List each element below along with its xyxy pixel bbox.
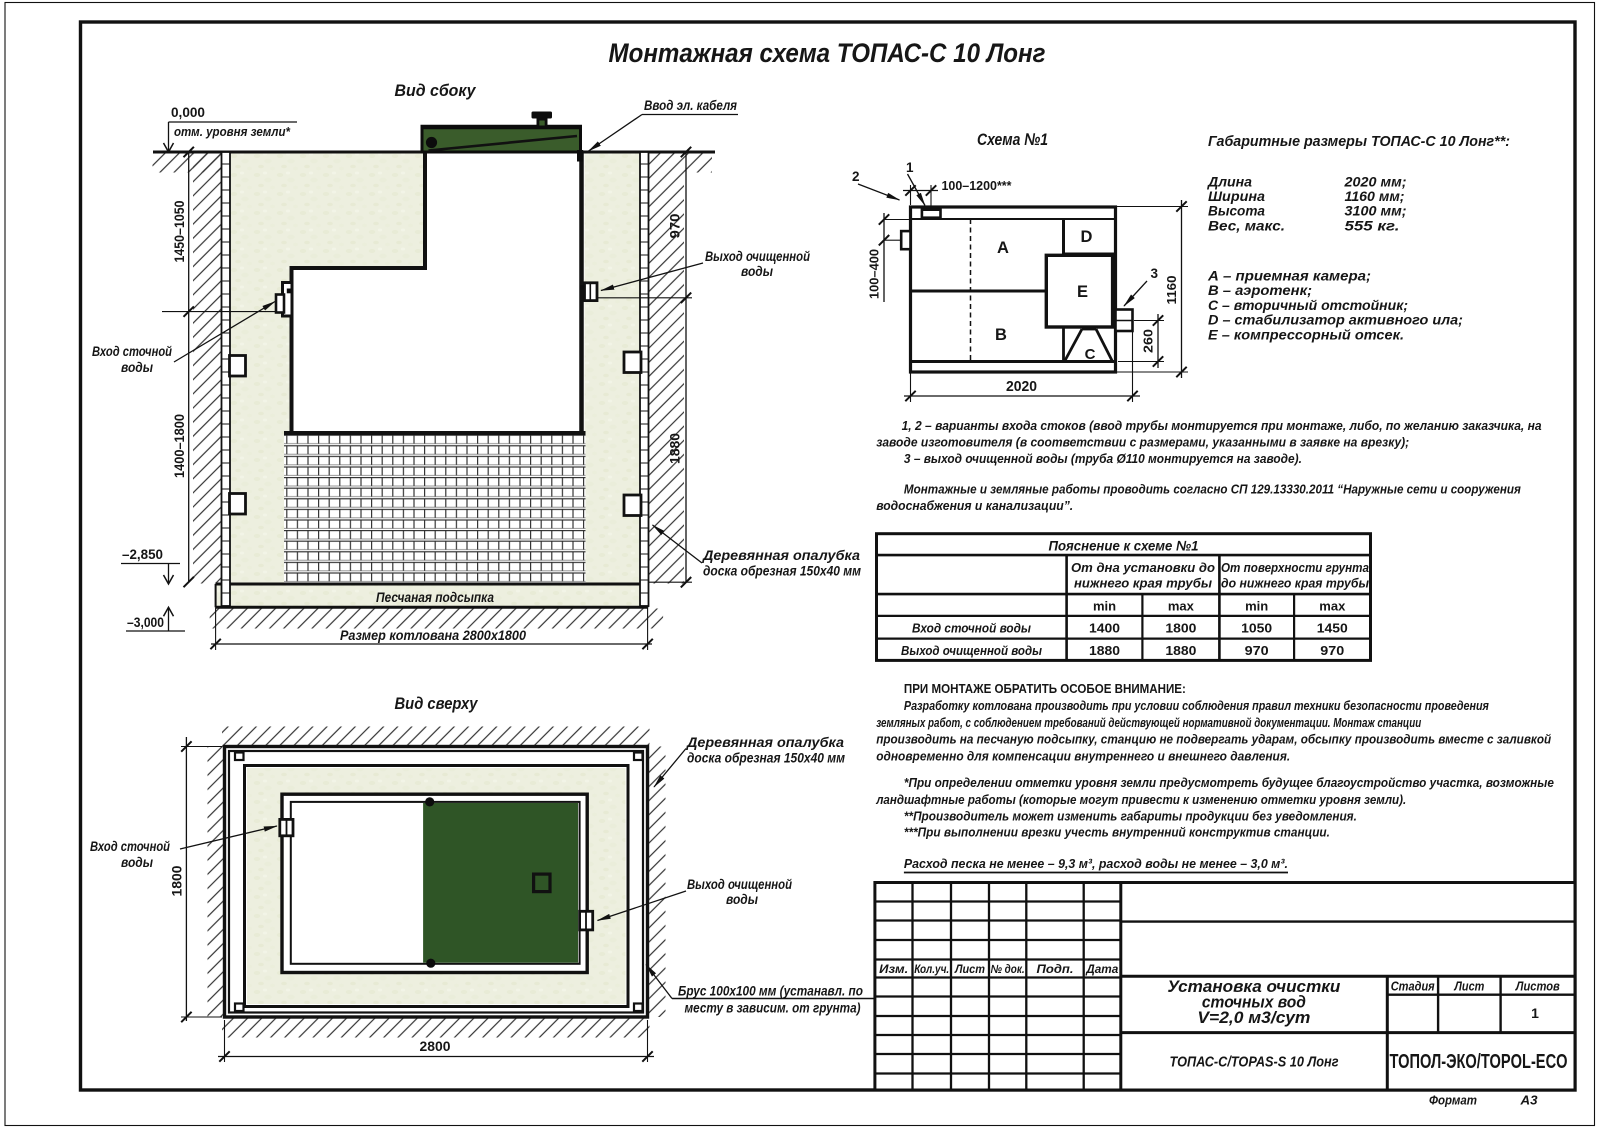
svg-text:От дна установки до: От дна установки до — [1071, 560, 1215, 575]
svg-text:В – аэротенк;: В – аэротенк; — [1208, 282, 1312, 298]
svg-text:Лист: Лист — [954, 962, 985, 976]
svg-text:Вид сбоку: Вид сбоку — [395, 81, 477, 100]
svg-text:Лист: Лист — [1454, 979, 1485, 994]
svg-text:970: 970 — [1245, 643, 1269, 658]
svg-text:***При выполнении врезки учест: ***При выполнении врезки учесть внутренн… — [904, 825, 1330, 840]
svg-text:Песчаная подсыпка: Песчаная подсыпка — [376, 590, 494, 605]
svg-text:Деревянная опалубка: Деревянная опалубка — [702, 548, 861, 563]
svg-text:V=2,0 м3/сут: V=2,0 м3/сут — [1197, 1009, 1310, 1027]
svg-text:1400–1800: 1400–1800 — [172, 414, 187, 478]
svg-text:отм. уровня земли*: отм. уровня земли* — [174, 124, 291, 139]
svg-text:А – приемная камера;: А – приемная камера; — [1207, 268, 1371, 284]
svg-text:Изм.: Изм. — [879, 962, 908, 976]
svg-text:970: 970 — [668, 214, 683, 239]
svg-text:Монтажные и земляные работы пр: Монтажные и земляные работы проводить со… — [904, 481, 1521, 496]
svg-text:воды: воды — [741, 264, 773, 279]
svg-text:нижнего края трубы: нижнего края трубы — [1074, 576, 1212, 591]
svg-text:доска обрезная 150х40 мм: доска обрезная 150х40 мм — [703, 564, 861, 579]
svg-text:min: min — [1245, 599, 1268, 614]
svg-text:ландшафтные работы (которые мо: ландшафтные работы (которые могут привес… — [875, 792, 1406, 807]
svg-text:3100 мм;: 3100 мм; — [1345, 203, 1407, 219]
svg-text:Вид сверху: Вид сверху — [395, 694, 479, 713]
svg-text:2020 мм;: 2020 мм; — [1343, 174, 1406, 190]
svg-text:Стадия: Стадия — [1391, 979, 1435, 994]
svg-text:водоснабжения и канализации”.: водоснабжения и канализации”. — [876, 498, 1073, 513]
svg-text:воды: воды — [726, 892, 758, 907]
svg-text:1450: 1450 — [1317, 621, 1348, 636]
svg-text:1400: 1400 — [1089, 621, 1120, 636]
svg-text:А: А — [997, 239, 1009, 257]
svg-text:заводе изготовителя (в соответ: заводе изготовителя (в соответствии с ра… — [876, 435, 1409, 450]
svg-text:Пояснение к схеме №1: Пояснение к схеме №1 — [1049, 538, 1199, 554]
svg-text:max: max — [1319, 599, 1346, 614]
svg-text:D – стабилизатор активного ила: D – стабилизатор активного ила; — [1208, 312, 1463, 328]
svg-text:Выход очищенной воды: Выход очищенной воды — [901, 643, 1042, 658]
svg-text:Вход сточной воды: Вход сточной воды — [912, 621, 1031, 636]
svg-text:№ док.: № док. — [991, 962, 1025, 976]
svg-text:3: 3 — [1151, 266, 1159, 281]
svg-text:Монтажная схема ТОПАС-С 10 Лон: Монтажная схема ТОПАС-С 10 Лонг — [609, 38, 1046, 68]
svg-text:месту в зависим. от грунта): месту в зависим. от грунта) — [685, 1001, 861, 1016]
svg-text:2020: 2020 — [1006, 379, 1037, 395]
svg-text:Вход сточной: Вход сточной — [92, 344, 173, 359]
svg-text:земляных работ, с соблюдением: земляных работ, с соблюдением требований… — [876, 715, 1421, 730]
svg-text:Длина: Длина — [1207, 174, 1252, 190]
svg-text:100–400: 100–400 — [867, 249, 882, 299]
svg-text:одновременно для компенсации в: одновременно для компенсации внутреннего… — [876, 748, 1290, 763]
svg-text:Е: Е — [1077, 283, 1088, 301]
svg-text:2800: 2800 — [420, 1039, 451, 1054]
svg-text:max: max — [1168, 599, 1195, 614]
svg-text:D: D — [1081, 228, 1093, 246]
svg-text:Формат: Формат — [1429, 1093, 1477, 1108]
svg-text:1800: 1800 — [170, 866, 185, 897]
svg-text:1050: 1050 — [1241, 621, 1272, 636]
svg-text:воды: воды — [121, 855, 153, 870]
svg-text:1, 2 – варианты входа стоков: 1, 2 – варианты входа стоков (ввод трубы… — [902, 418, 1542, 433]
svg-text:доска обрезная 150х40 мм: доска обрезная 150х40 мм — [687, 751, 845, 766]
svg-text:100–1200***: 100–1200*** — [942, 178, 1013, 193]
svg-text:От поверхности грунта: От поверхности грунта — [1221, 560, 1369, 575]
svg-text:А3: А3 — [1519, 1093, 1538, 1108]
svg-text:Дата: Дата — [1085, 962, 1118, 976]
svg-text:В: В — [995, 326, 1007, 344]
svg-text:до нижнего края трубы: до нижнего края трубы — [1221, 576, 1369, 591]
svg-text:1880: 1880 — [668, 433, 683, 464]
svg-text:1800: 1800 — [1165, 621, 1196, 636]
svg-text:ТОПАС-С/TOPAS-S 10 Лонг: ТОПАС-С/TOPAS-S 10 Лонг — [1170, 1055, 1339, 1071]
svg-text:1880: 1880 — [1165, 643, 1196, 658]
svg-text:Кол.уч.: Кол.уч. — [914, 962, 949, 976]
svg-text:555 кг.: 555 кг. — [1345, 217, 1400, 233]
svg-text:Схема №1: Схема №1 — [977, 130, 1048, 149]
svg-text:1160 мм;: 1160 мм; — [1345, 188, 1405, 204]
svg-text:1160: 1160 — [1164, 276, 1179, 305]
svg-text:*При определении отметки уровн: *При определении отметки уровня земли пр… — [904, 775, 1554, 790]
svg-text:min: min — [1093, 599, 1116, 614]
svg-text:Вход сточной: Вход сточной — [90, 839, 171, 854]
svg-text:Габаритные размеры ТОПАС-С 10: Габаритные размеры ТОПАС-С 10 Лонг**: — [1208, 134, 1510, 150]
svg-text:Ширина: Ширина — [1208, 188, 1265, 204]
svg-text:Расход песка не менее – 9,3 м³: Расход песка не менее – 9,3 м³, расход в… — [904, 856, 1288, 871]
svg-text:2: 2 — [852, 169, 860, 184]
svg-text:производить на песчаную подсып: производить на песчаную подсыпку, станци… — [876, 732, 1551, 747]
svg-text:3 – выход очищенной воды (труб: 3 – выход очищенной воды (труба Ø110 мон… — [904, 451, 1302, 466]
svg-text:С – вторичный отстойник;: С – вторичный отстойник; — [1208, 297, 1408, 313]
svg-text:воды: воды — [121, 360, 153, 375]
svg-text:Подп.: Подп. — [1037, 962, 1074, 976]
svg-text:1: 1 — [906, 160, 914, 175]
svg-text:Выход очищенной: Выход очищенной — [687, 877, 793, 892]
svg-text:Е – компрессорный отсек.: Е – компрессорный отсек. — [1208, 326, 1404, 342]
svg-text:Выход очищенной: Выход очищенной — [705, 249, 811, 264]
svg-text:Разработку котлована производи: Разработку котлована производить при усл… — [904, 698, 1489, 713]
svg-text:Деревянная опалубка: Деревянная опалубка — [686, 735, 845, 750]
svg-text:Размер котлована 2800х1800: Размер котлована 2800х1800 — [340, 628, 526, 643]
svg-text:970: 970 — [1320, 643, 1344, 658]
svg-text:1: 1 — [1531, 1005, 1539, 1021]
svg-text:–3,000: –3,000 — [127, 615, 164, 630]
svg-text:1880: 1880 — [1089, 643, 1120, 658]
svg-text:**Производитель может изменить: **Производитель может изменить габариты … — [904, 808, 1357, 823]
svg-text:Вес, макс.: Вес, макс. — [1208, 217, 1285, 233]
svg-text:ТОПОЛ-ЭКО/TOPOL-ECO: ТОПОЛ-ЭКО/TOPOL-ECO — [1390, 1051, 1568, 1073]
svg-text:260: 260 — [1141, 329, 1156, 353]
svg-text:С: С — [1085, 346, 1096, 363]
svg-text:–2,850: –2,850 — [122, 547, 163, 562]
svg-text:1450–1050: 1450–1050 — [172, 201, 187, 263]
svg-text:0,000: 0,000 — [171, 105, 205, 120]
svg-text:Ввод эл. кабеля: Ввод эл. кабеля — [644, 98, 737, 113]
svg-text:Брус 100х100 мм (устанавл. по: Брус 100х100 мм (устанавл. по — [678, 984, 863, 999]
svg-text:Листов: Листов — [1515, 979, 1560, 994]
svg-text:Высота: Высота — [1208, 203, 1265, 219]
svg-text:ПРИ МОНТАЖЕ ОБРАТИТЬ ОСОБОЕ ВН: ПРИ МОНТАЖЕ ОБРАТИТЬ ОСОБОЕ ВНИМАНИЕ: — [904, 681, 1186, 696]
